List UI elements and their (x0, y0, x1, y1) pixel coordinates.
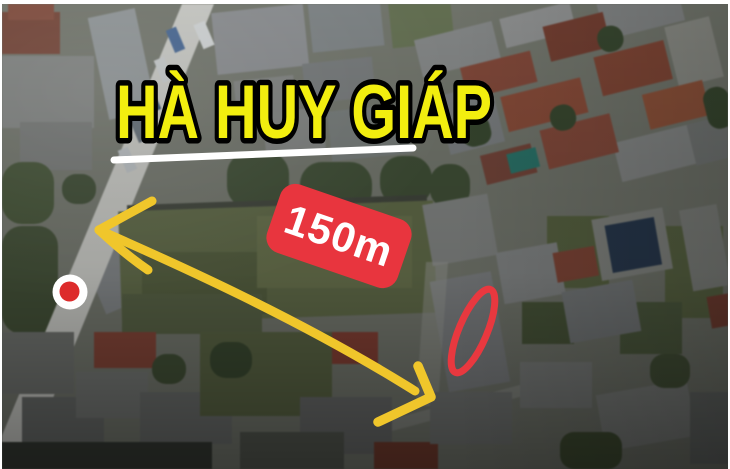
aerial-map-view: HÀ HUY GIÁP 150m (2, 4, 728, 469)
route-arrowhead-upper-barb (99, 201, 152, 230)
thumbnail-frame: HÀ HUY GIÁP 150m (0, 0, 730, 469)
street-name-title: HÀ HUY GIÁP (116, 70, 492, 155)
location-pin-inner (60, 282, 80, 302)
destination-highlight-ellipse (443, 284, 504, 378)
location-pin-icon (53, 275, 88, 310)
